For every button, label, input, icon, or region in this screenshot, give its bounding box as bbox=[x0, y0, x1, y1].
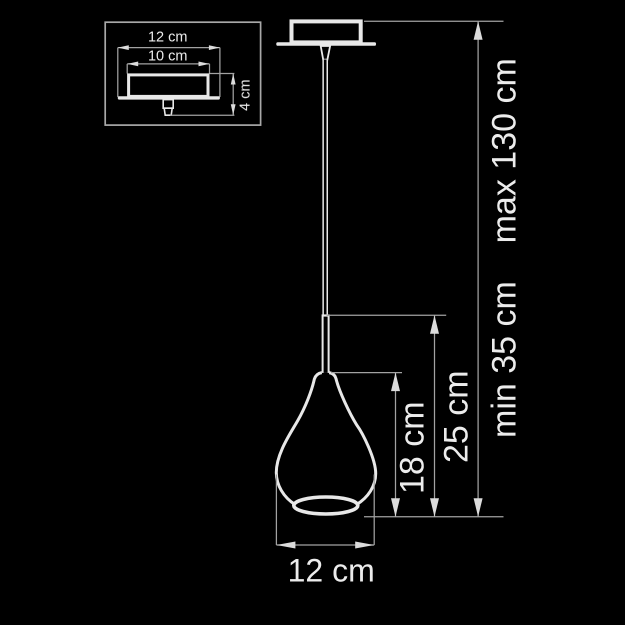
svg-text:4 cm: 4 cm bbox=[238, 79, 254, 110]
svg-text:min 35 cm max 130 cm: min 35 cm max 130 cm bbox=[486, 58, 524, 438]
svg-text:10 cm: 10 cm bbox=[148, 48, 188, 64]
svg-text:25 cm: 25 cm bbox=[438, 370, 476, 463]
svg-text:12 cm: 12 cm bbox=[148, 30, 188, 46]
svg-text:18 cm: 18 cm bbox=[394, 401, 432, 494]
svg-text:12 cm: 12 cm bbox=[288, 553, 375, 589]
